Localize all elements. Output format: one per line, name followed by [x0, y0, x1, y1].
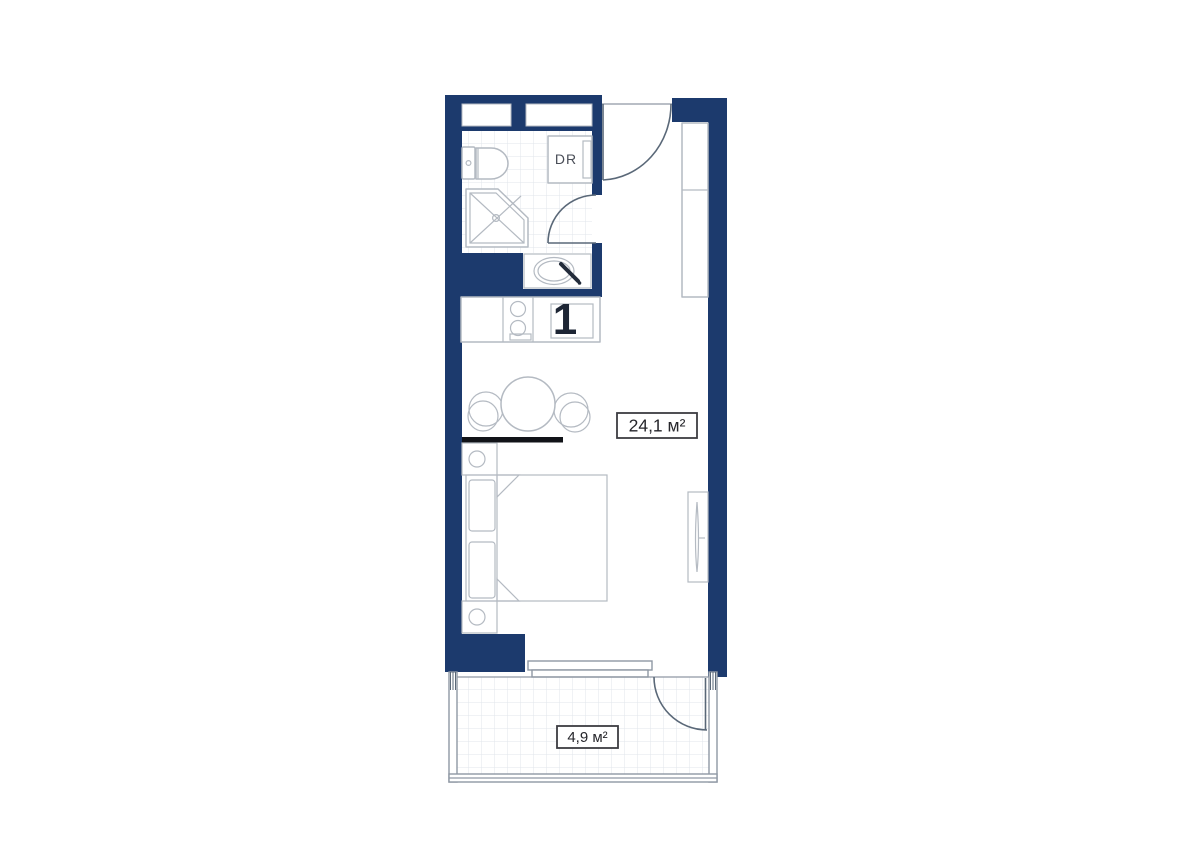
sleeping-area	[462, 443, 607, 633]
nightstand-bottom-icon	[462, 601, 497, 633]
entrance-door-arc	[603, 104, 671, 180]
floor-plan-page: DR 1	[0, 0, 1200, 849]
bed-icon	[466, 475, 607, 601]
main-area-label: 24,1 м²	[617, 413, 697, 438]
floor-plan-svg: DR 1	[0, 0, 1200, 849]
bathroom-partition-upper	[592, 131, 602, 195]
wall-right	[708, 98, 727, 677]
closet-label: DR	[555, 151, 577, 167]
bathroom-kitchen-wall	[445, 289, 602, 297]
entrance	[602, 104, 672, 180]
chair-right-icon	[554, 393, 588, 427]
pillow-1-icon	[469, 480, 495, 531]
balcony-window-icon	[528, 661, 652, 677]
nightstand-top-icon	[462, 443, 497, 475]
partition-line	[462, 437, 563, 443]
wardrobe-icon	[682, 123, 708, 297]
toilet-icon	[462, 147, 508, 179]
bathroom-partition-lower	[592, 243, 602, 297]
dining-table-icon	[468, 377, 590, 432]
shower-icon	[466, 189, 528, 247]
wall-left	[445, 95, 462, 672]
table-top-icon	[501, 377, 555, 431]
chair-left-icon	[469, 392, 503, 426]
main-area-value: 24,1 м²	[629, 416, 686, 436]
unit-number-label: 1	[553, 295, 577, 344]
wall-niche-2	[526, 104, 592, 126]
sink-icon	[523, 253, 592, 289]
balcony-area-value: 4,9 м²	[567, 729, 607, 746]
radiator-icon	[688, 492, 708, 582]
wall-bottom-left-block	[445, 634, 525, 672]
kitchen: 1	[461, 295, 600, 344]
balcony-area-label: 4,9 м²	[557, 726, 618, 748]
wall-niche-1	[462, 104, 511, 126]
closet-dr: DR	[548, 136, 592, 183]
pillow-2-icon	[469, 542, 495, 598]
